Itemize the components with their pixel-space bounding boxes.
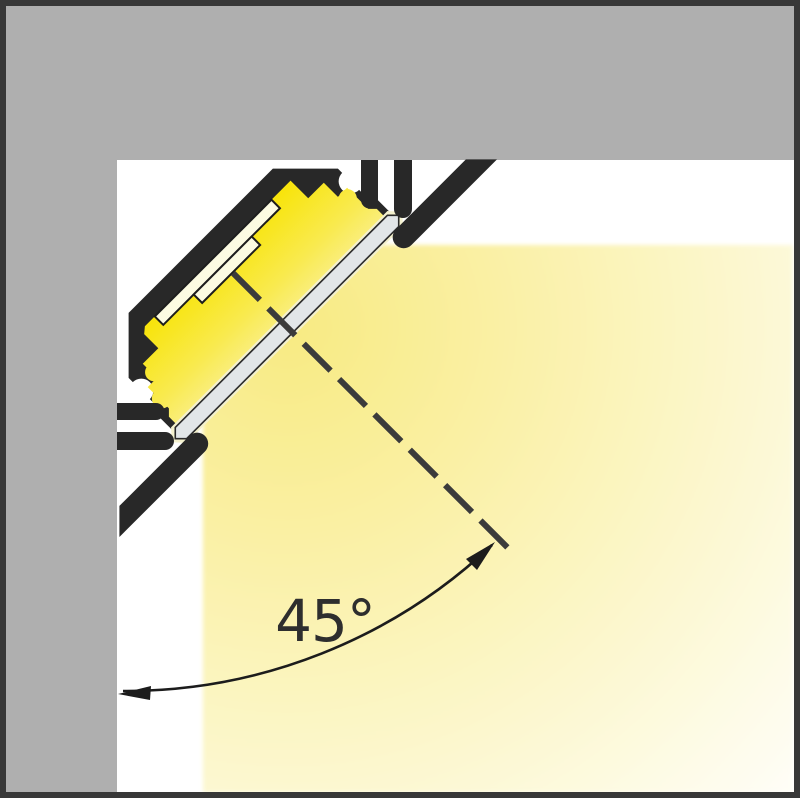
diagram-stage: 45° [0,0,800,798]
ceiling-mounting-fin-2 [394,160,412,218]
angle-label: 45° [275,587,375,655]
wall-surface [6,6,117,792]
wall-mounting-fin-1 [117,403,165,420]
ceiling-mounting-fin-1 [361,160,378,209]
wall-mounting-fin-2 [117,432,174,450]
led-profile-45deg-diagram: 45° [0,0,800,798]
ceiling-surface [6,6,794,160]
